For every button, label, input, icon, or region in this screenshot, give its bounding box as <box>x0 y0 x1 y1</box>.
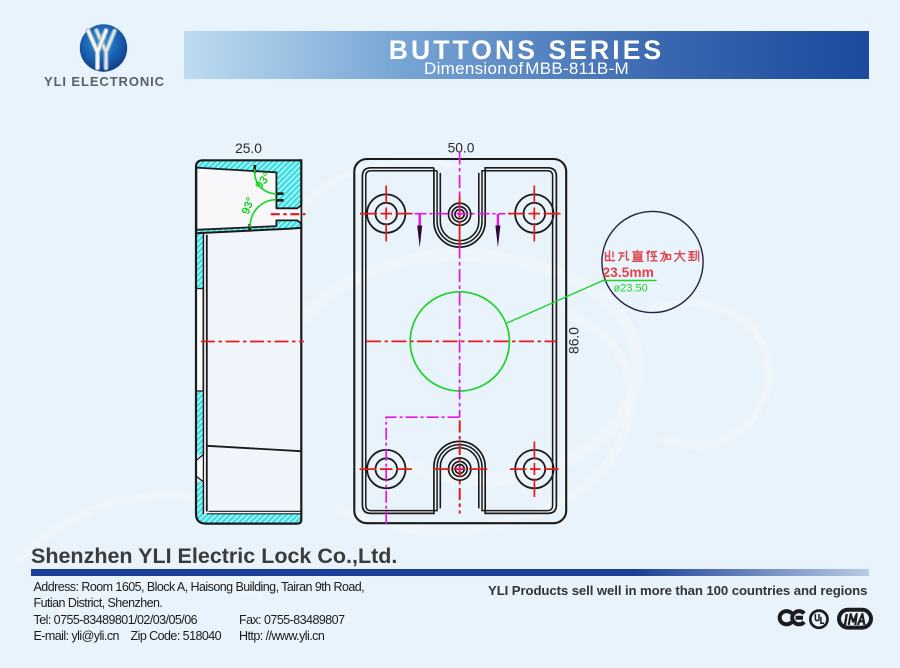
svg-text:50.0: 50.0 <box>448 141 475 156</box>
svg-text:86.0: 86.0 <box>567 327 582 354</box>
svg-text:ø23.50: ø23.50 <box>614 283 648 295</box>
svg-text:23.5mm: 23.5mm <box>603 265 654 280</box>
svg-text:25.0: 25.0 <box>235 141 262 156</box>
